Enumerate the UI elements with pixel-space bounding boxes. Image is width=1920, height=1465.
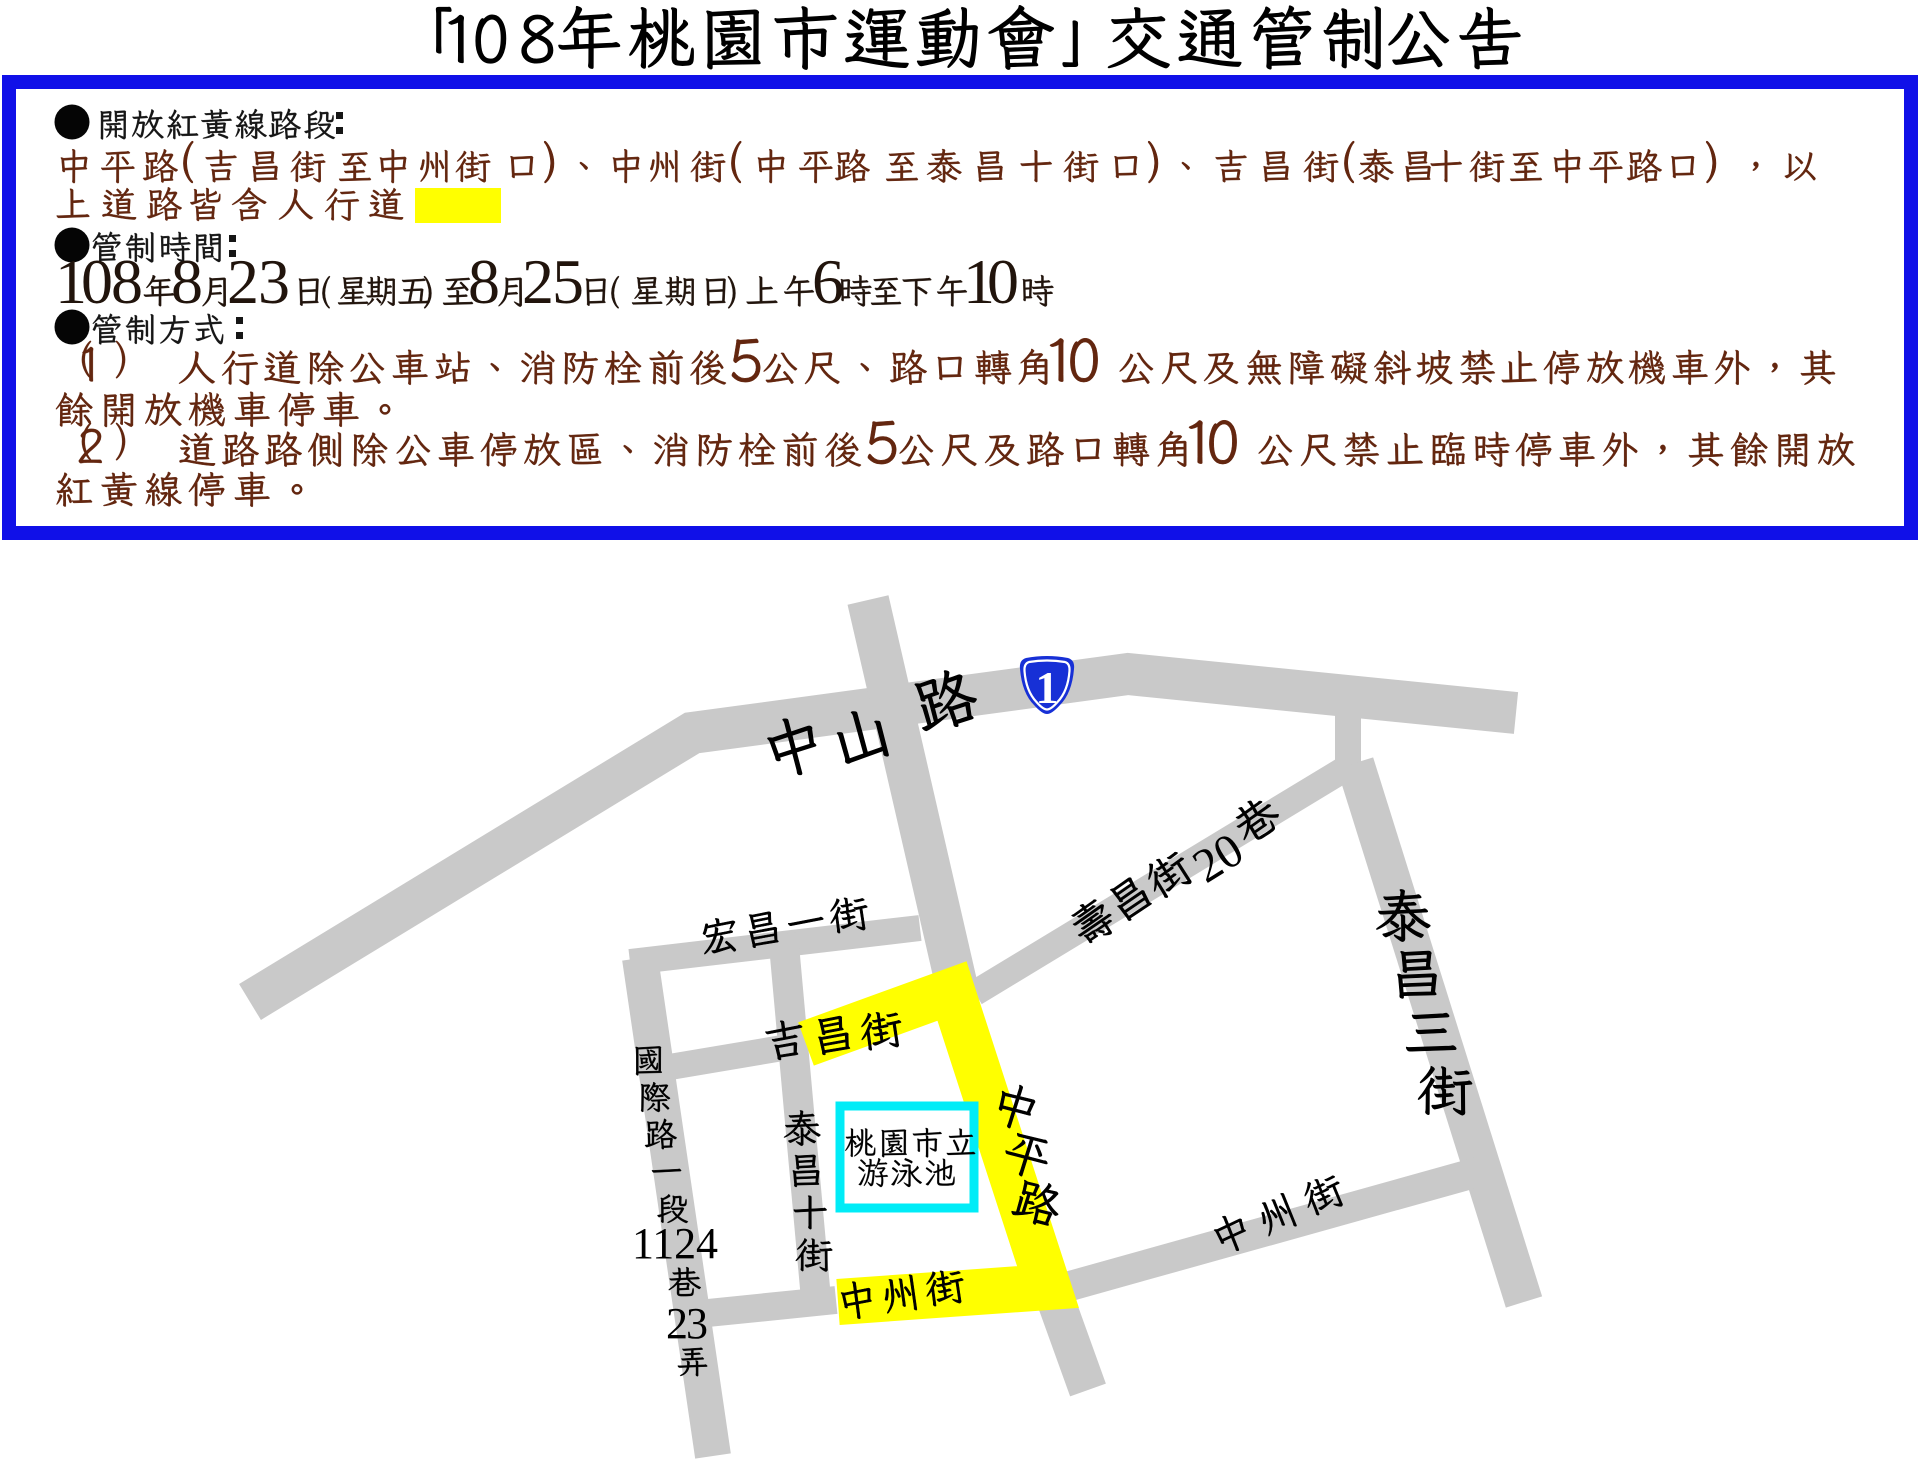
svg-text:0: 0	[81, 246, 113, 317]
svg-text:2: 2	[522, 246, 554, 317]
svg-text:8: 8	[111, 246, 143, 317]
svg-text:2: 2	[227, 246, 259, 317]
svg-text:3: 3	[258, 246, 290, 317]
svg-text:6: 6	[812, 246, 844, 317]
svg-text:0: 0	[987, 246, 1019, 317]
svg-text:23: 23	[666, 1299, 708, 1348]
svg-text:1124: 1124	[632, 1219, 718, 1268]
svg-text:8: 8	[468, 246, 500, 317]
svg-text:5: 5	[552, 246, 584, 317]
svg-text:8: 8	[171, 246, 203, 317]
svg-text:1: 1	[1036, 662, 1059, 713]
